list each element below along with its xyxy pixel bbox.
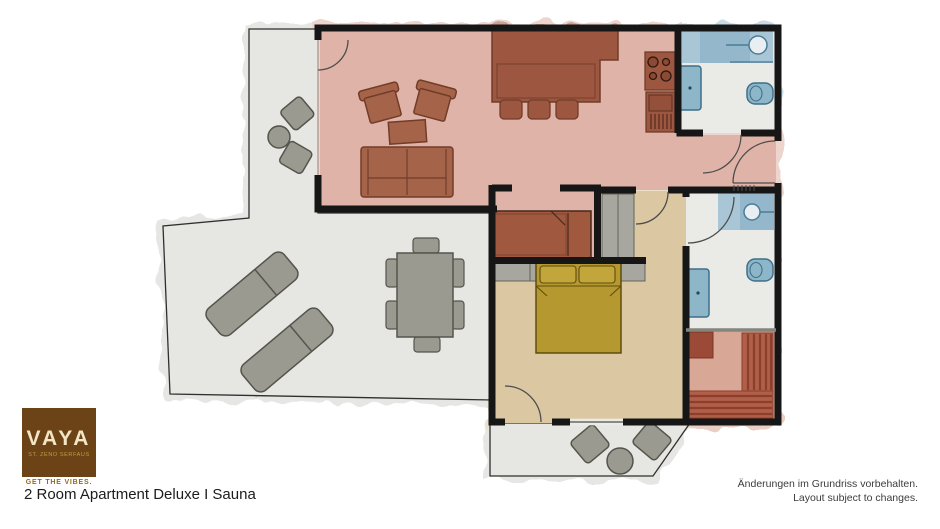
toilet [747,83,773,104]
bar-stools [500,100,578,119]
disclaimer-line-en: Layout subject to changes. [738,492,918,506]
vaya-logo: VAYA ST. ZENO SERFAUS [22,408,96,477]
stove [645,52,675,90]
shower-head [744,204,760,220]
disclaimer: Änderungen im Grundriss vorbehalten. Lay… [738,478,918,505]
sofa-bed [491,211,591,258]
side-table [268,126,290,148]
logo-location: ST. ZENO SERFAUS [28,452,90,458]
dining-table-set [386,238,464,352]
floor-plan [0,0,940,529]
coffee-table [388,120,426,145]
kitchen-counter [492,30,618,102]
logo-tagline: GET THE VIBES. [22,479,96,486]
disclaimer-line-de: Änderungen im Grundriss vorbehalten. [738,478,918,492]
dining-table [397,253,453,337]
double-bed [536,263,621,353]
apartment-title: 2 Room Apartment Deluxe I Sauna [24,486,256,503]
logo-wordmark: VAYA [27,428,92,449]
floor-plan-page: VAYA ST. ZENO SERFAUS GET THE VIBES. 2 R… [0,0,940,529]
shower-head [749,36,767,54]
toilet [747,259,773,281]
side-table [607,448,633,474]
sofa [361,147,453,197]
kitchen-cabinet [646,92,675,132]
